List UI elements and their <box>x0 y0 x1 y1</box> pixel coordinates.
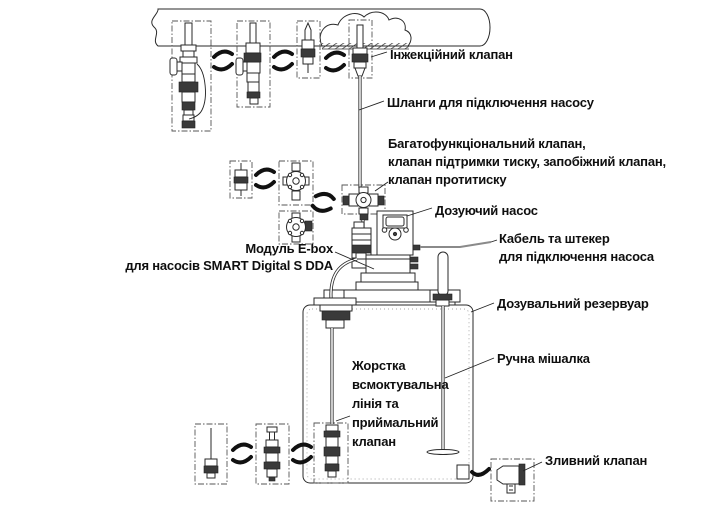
label-dosing-pump: Дозуючий насос <box>435 202 538 220</box>
pump-cable-gland <box>413 245 420 250</box>
drain-arrow-icon <box>472 469 489 475</box>
variant-box-suction-a <box>195 424 227 484</box>
round-valve-variant-2 <box>287 213 313 242</box>
leader-multifunction-valve <box>375 182 388 191</box>
label-mixer: Ручна мішалка <box>497 350 590 368</box>
leader-cable <box>491 240 497 242</box>
label-injection-valve: Інжекційний клапан <box>390 46 513 64</box>
leader-drain-valve <box>523 462 542 471</box>
leader-hoses <box>359 101 384 110</box>
label-reservoir: Дозувальний резервуар <box>497 295 649 313</box>
cable-line <box>420 242 491 247</box>
label-drain-valve: Зливний клапан <box>545 452 647 470</box>
label-suction-line: Жорстка всмоктувальна лінія та приймальн… <box>352 356 449 451</box>
swap-arrows-icon <box>214 52 232 70</box>
variant-box-suction-b <box>256 424 289 484</box>
label-hoses: Шланги для підключення насосу <box>387 94 594 112</box>
label-multifunction-valve: Багатофункціональний клапан, клапан підт… <box>388 135 666 189</box>
round-valve-variant <box>283 163 309 200</box>
swap-arrows-icon <box>256 170 274 188</box>
swap-arrows-icon <box>326 53 344 71</box>
variant-box-backpressure <box>230 161 252 198</box>
swap-arrows-icon <box>312 191 335 213</box>
leader-reservoir <box>471 303 494 312</box>
drain-valve <box>491 459 534 501</box>
mixer-handle <box>438 252 448 296</box>
label-ebox: Модуль E-box для насосів SMART Digital S… <box>105 240 333 274</box>
dosing-pump <box>377 211 420 255</box>
leader-injection-valve <box>371 52 387 57</box>
diagram-canvas: Інжекційний клапан Шланги для підключенн… <box>0 0 704 528</box>
swap-arrows-icon <box>274 52 292 70</box>
swap-arrows-icon <box>233 445 251 463</box>
variant-box-round-valve <box>279 161 313 205</box>
label-cable: Кабель та штекер для підключення насоса <box>499 230 654 266</box>
ebox-module <box>356 253 418 290</box>
